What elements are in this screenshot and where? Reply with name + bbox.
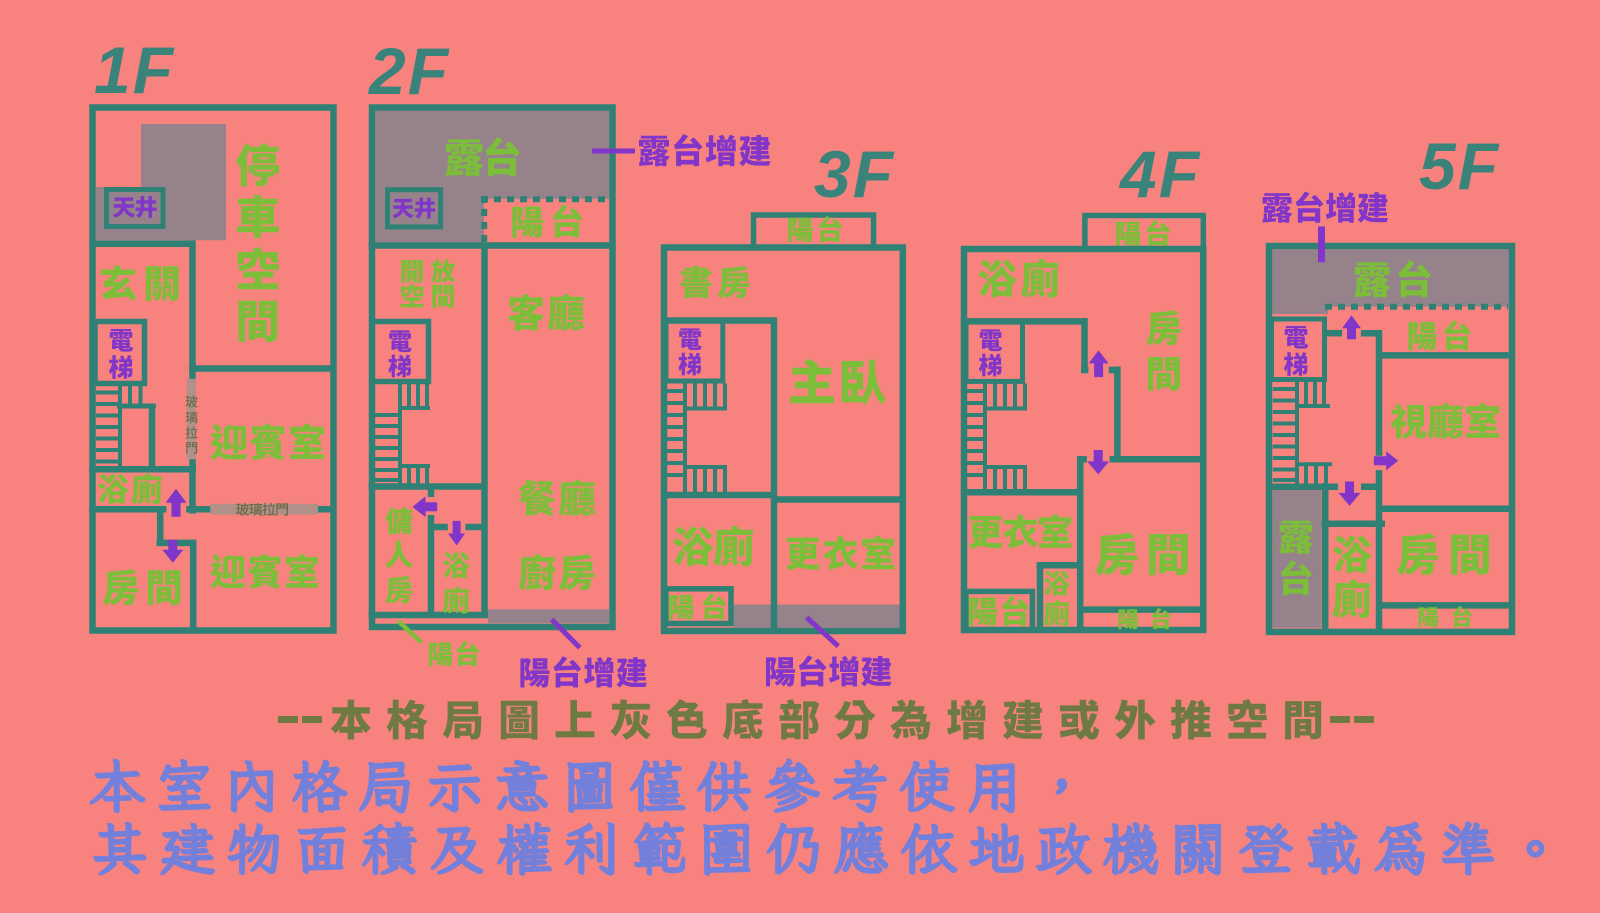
svg-text:5F: 5F: [1419, 129, 1500, 203]
svg-text:4F: 4F: [1118, 137, 1201, 211]
svg-text:3F: 3F: [814, 137, 895, 211]
svg-text:1F: 1F: [94, 33, 175, 107]
svg-text:2F: 2F: [367, 34, 450, 108]
